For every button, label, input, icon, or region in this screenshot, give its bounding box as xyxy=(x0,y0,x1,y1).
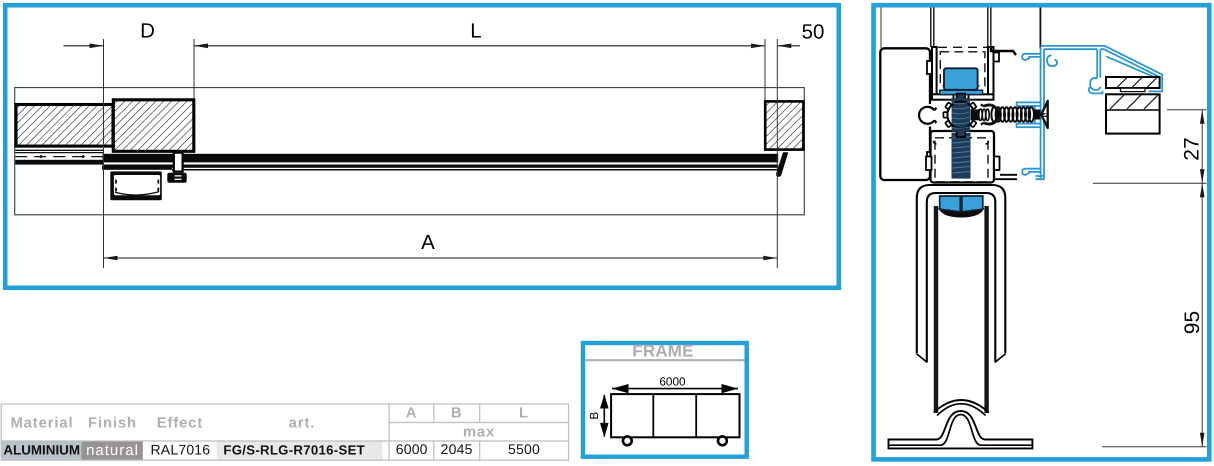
svg-text:B: B xyxy=(451,406,463,422)
svg-text:D: D xyxy=(140,20,155,43)
svg-text:50: 50 xyxy=(802,21,825,44)
svg-text:2045: 2045 xyxy=(441,441,473,457)
svg-text:L: L xyxy=(470,20,481,43)
svg-text:max: max xyxy=(463,424,495,440)
svg-text:27: 27 xyxy=(1181,137,1204,160)
svg-text:A: A xyxy=(421,231,435,254)
svg-text:95: 95 xyxy=(1181,311,1204,334)
svg-text:L: L xyxy=(519,406,529,422)
svg-text:natural: natural xyxy=(86,442,139,459)
svg-text:RAL7016: RAL7016 xyxy=(151,442,211,458)
svg-text:Material: Material xyxy=(10,415,73,431)
svg-text:6000: 6000 xyxy=(396,441,428,457)
svg-text:FG/S-RLG-R7016-SET: FG/S-RLG-R7016-SET xyxy=(223,443,365,458)
svg-text:A: A xyxy=(406,406,418,422)
svg-text:ALUMINIUM: ALUMINIUM xyxy=(3,443,80,458)
svg-text:5500: 5500 xyxy=(508,441,540,457)
svg-text:Effect: Effect xyxy=(157,415,204,431)
svg-text:FRAME: FRAME xyxy=(632,342,693,361)
svg-text:Finish: Finish xyxy=(88,415,137,431)
svg-text:6000: 6000 xyxy=(659,375,686,389)
svg-text:art.: art. xyxy=(289,415,316,431)
svg-text:B: B xyxy=(587,412,601,420)
